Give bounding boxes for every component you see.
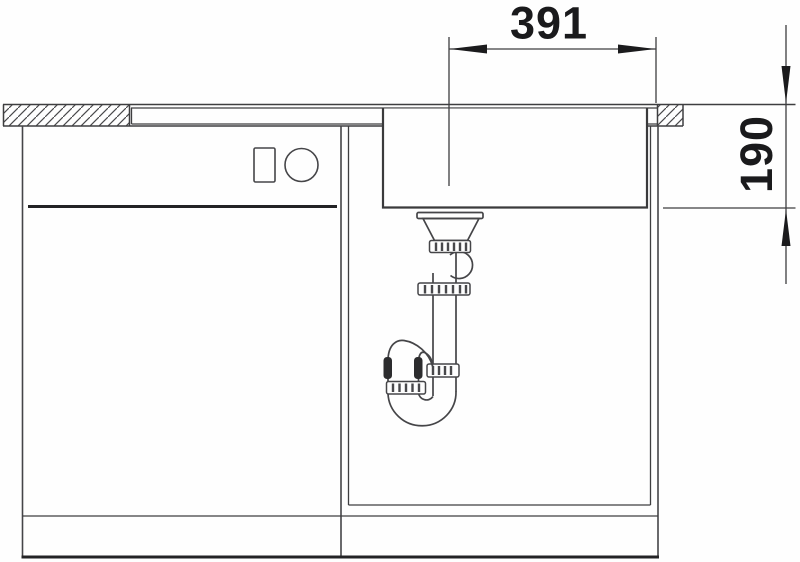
coupling-lug-right [414, 357, 423, 379]
control-knob-symbol [285, 149, 318, 182]
coupling-lug-left [384, 357, 393, 379]
depth-dimension-label: 190 [731, 115, 782, 193]
dimension-depth: 190 [663, 25, 796, 284]
drain-assembly [384, 213, 484, 426]
counter-hatch-right [658, 105, 684, 127]
drain-flange [417, 213, 483, 219]
strainer-cup [423, 219, 479, 241]
sink-basin [383, 109, 647, 208]
depth-arrow-top [782, 66, 791, 103]
sink-installation-drawing: 391 190 [0, 0, 800, 562]
pipe-upper [433, 253, 456, 284]
trap-left-arm [384, 340, 433, 394]
width-dimension-label: 391 [510, 0, 588, 49]
control-rectangle-symbol [254, 148, 275, 182]
pipe-lower [433, 377, 456, 396]
knurled-nut-2 [418, 283, 470, 295]
technical-drawing-svg: 391 190 [0, 0, 800, 562]
pipe-mid [433, 295, 456, 364]
width-arrow-left [450, 45, 488, 54]
hook-elbow [450, 252, 473, 279]
depth-arrow-bottom [782, 210, 791, 247]
u-bend [388, 392, 456, 426]
width-arrow-right [618, 45, 656, 54]
counter-hatch-left [3, 105, 129, 127]
knurled-nut-4 [387, 382, 426, 395]
knurled-nut-1 [430, 241, 471, 253]
